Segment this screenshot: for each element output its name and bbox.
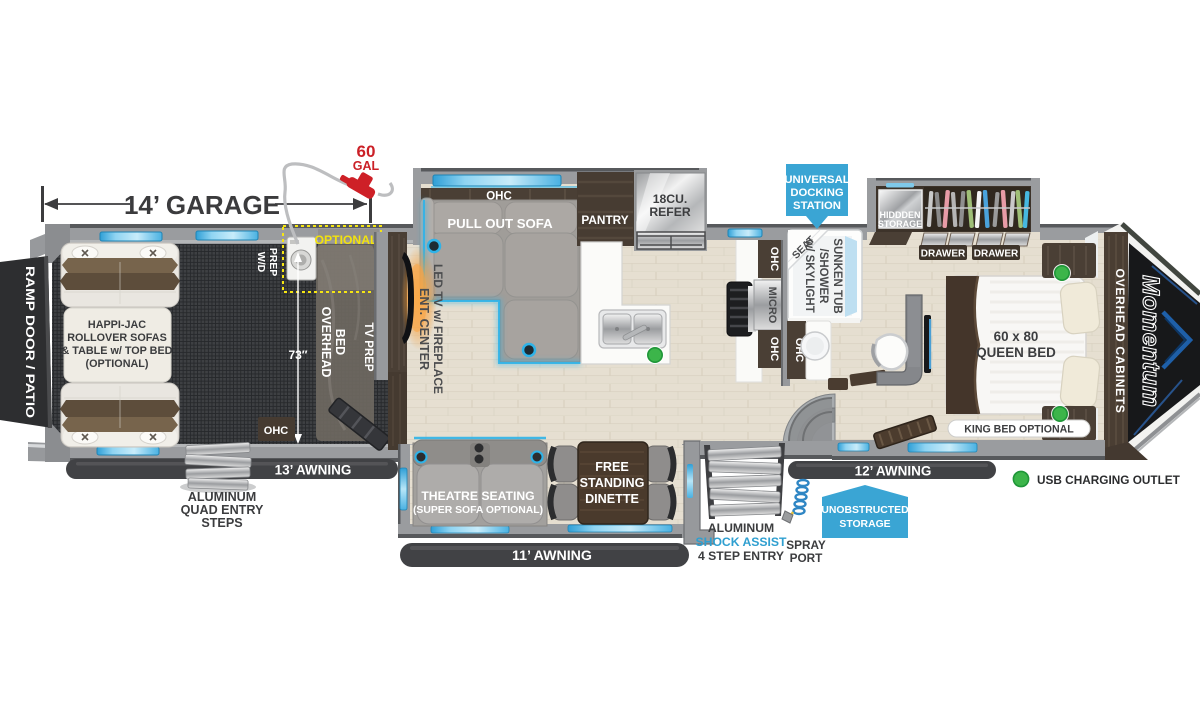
svg-text:GAL: GAL	[353, 159, 380, 173]
svg-text:18CU.: 18CU.	[653, 192, 688, 206]
svg-text:REFER: REFER	[649, 205, 691, 219]
svg-text:TV PREP: TV PREP	[362, 322, 374, 372]
svg-text:SPRAY: SPRAY	[786, 538, 826, 552]
svg-text:OHC: OHC	[264, 425, 289, 437]
svg-text:UNOBSTRUCTED: UNOBSTRUCTED	[821, 505, 909, 516]
svg-text:73″: 73″	[288, 348, 307, 362]
svg-text:OHC: OHC	[768, 337, 780, 362]
svg-text:14’ GARAGE: 14’ GARAGE	[124, 190, 280, 220]
svg-text:STATION: STATION	[793, 200, 841, 212]
svg-text:ROLLOVER SOFAS: ROLLOVER SOFAS	[67, 332, 167, 344]
svg-text:OPTIONAL: OPTIONAL	[315, 233, 379, 247]
svg-text:DOCKING: DOCKING	[790, 187, 844, 199]
svg-text:ALUMINUM: ALUMINUM	[708, 521, 774, 535]
svg-text:USB CHARGING OUTLET: USB CHARGING OUTLET	[1037, 473, 1181, 487]
svg-text:DRAWER: DRAWER	[974, 249, 1019, 260]
svg-text:DINETTE: DINETTE	[585, 492, 639, 506]
svg-text:UNIVERSAL: UNIVERSAL	[784, 174, 849, 186]
svg-text:STEPS: STEPS	[201, 516, 242, 530]
svg-text:QUAD ENTRY: QUAD ENTRY	[181, 503, 264, 517]
svg-text:11’ AWNING: 11’ AWNING	[512, 548, 592, 564]
svg-text:(SUPER SOFA OPTIONAL): (SUPER SOFA OPTIONAL)	[413, 505, 543, 516]
svg-text:60 x 80: 60 x 80	[994, 329, 1039, 344]
svg-text:QUEEN BED: QUEEN BED	[976, 345, 1056, 360]
svg-text:12’ AWNING: 12’ AWNING	[855, 464, 932, 479]
svg-text:13’ AWNING: 13’ AWNING	[275, 463, 352, 478]
svg-text:DRAWER: DRAWER	[921, 249, 966, 260]
svg-text:STANDING: STANDING	[580, 476, 645, 490]
svg-text:KING BED OPTIONAL: KING BED OPTIONAL	[964, 424, 1074, 436]
svg-text:OVERHEAD CABINETS: OVERHEAD CABINETS	[1113, 269, 1127, 414]
svg-text:PULL OUT SOFA: PULL OUT SOFA	[447, 216, 553, 231]
svg-text:STORAGE: STORAGE	[839, 519, 890, 530]
svg-text:FREE: FREE	[595, 460, 629, 474]
svg-text:ALUMINUM: ALUMINUM	[188, 490, 257, 504]
svg-text:OHC: OHC	[768, 247, 780, 272]
svg-text:(OPTIONAL): (OPTIONAL)	[86, 358, 149, 370]
svg-text:Momentum: Momentum	[1137, 275, 1164, 407]
svg-text:HAPPI-JAC: HAPPI-JAC	[88, 319, 146, 331]
svg-text:RAMP DOOR / PATIO: RAMP DOOR / PATIO	[23, 266, 37, 418]
svg-text:PORT: PORT	[790, 551, 824, 565]
svg-text:W/D: W/D	[255, 252, 267, 273]
svg-text:SUNKEN TUB: SUNKEN TUB	[831, 238, 843, 313]
svg-text:4 STEP ENTRY: 4 STEP ENTRY	[698, 549, 784, 563]
svg-text:/SHOWER: /SHOWER	[817, 249, 829, 305]
svg-text:PREP: PREP	[267, 248, 279, 277]
svg-text:ENT. CENTER: ENT. CENTER	[417, 288, 431, 370]
svg-text:PANTRY: PANTRY	[581, 213, 628, 227]
svg-text:LED TV w/ FIREPLACE: LED TV w/ FIREPLACE	[431, 264, 445, 394]
svg-text:SHOCK ASSIST: SHOCK ASSIST	[696, 535, 788, 549]
svg-text:THEATRE SEATING: THEATRE SEATING	[421, 489, 534, 503]
svg-text:MICRO: MICRO	[766, 287, 778, 324]
svg-text:& TABLE w/ TOP BED: & TABLE w/ TOP BED	[62, 345, 173, 357]
svg-text:STORAGE: STORAGE	[878, 219, 922, 229]
svg-text:OVERHEAD: OVERHEAD	[319, 307, 333, 378]
svg-text:BED: BED	[333, 329, 347, 355]
svg-text:w/ SKYLIGHT: w/ SKYLIGHT	[803, 238, 815, 312]
